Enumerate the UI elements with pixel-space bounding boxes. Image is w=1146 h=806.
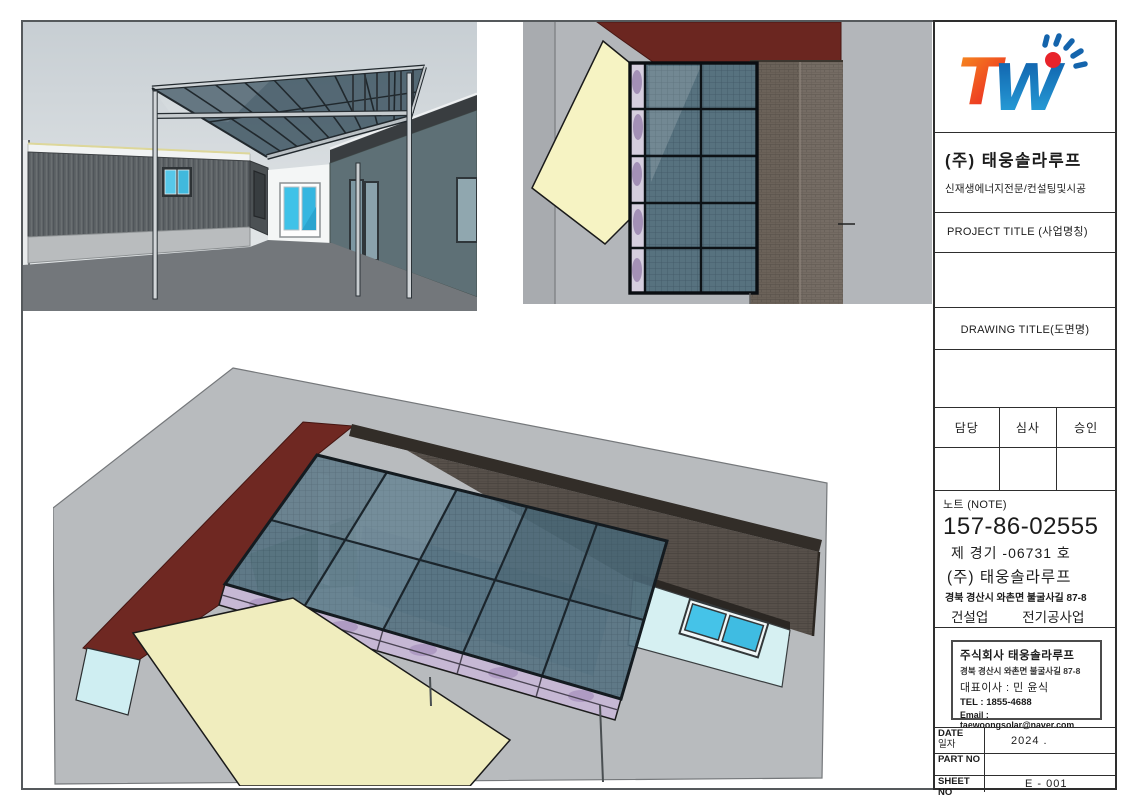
- business-types: 건설업 전기공사업: [943, 606, 1111, 626]
- note-cell: 노트 (NOTE) 157-86-02555 제 경기 -06731 호 (주)…: [935, 490, 1115, 627]
- info-address: 경북 경산시 와촌면 불굴사길 87-8: [960, 665, 1096, 677]
- company-info-cell: 주식회사 태웅솔라루프 경북 경산시 와촌면 불굴사길 87-8 대표이사 : …: [935, 627, 1115, 727]
- tw-logo: T W: [950, 32, 1100, 122]
- brown-building: [750, 61, 843, 304]
- approval-signature-row: [935, 447, 1115, 490]
- approval-col-simsa: 심사: [999, 408, 1057, 447]
- note-label: 노트 (NOTE): [943, 496, 1111, 512]
- company-subtitle: 신재생에너지전문/컨설팅및시공: [945, 181, 1107, 196]
- date-value: 2024 .: [985, 728, 1115, 753]
- drawing-sheet: T W (주) 태웅솔라루프 신재생에너지전문/컨설팅및시공 PROJECT T…: [0, 0, 1146, 806]
- drawing-title-label: DRAWING TITLE(도면명): [935, 307, 1115, 349]
- info-tel: TEL : 1855-4688: [960, 697, 1096, 708]
- logo-sun-dot: [1045, 52, 1061, 68]
- info-company: 주식회사 태웅솔라루프: [960, 647, 1096, 663]
- approval-col-seungin: 승인: [1056, 408, 1115, 447]
- logo-cell: T W: [935, 22, 1115, 132]
- note-company: (주) 태웅솔라루프: [943, 565, 1111, 587]
- approval-col-damdang: 담당: [935, 408, 999, 447]
- drawing-title-value: [935, 349, 1115, 407]
- title-block: T W (주) 태웅솔라루프 신재생에너지전문/컨설팅및시공 PROJECT T…: [933, 20, 1117, 790]
- company-name: (주) 태웅솔라루프: [945, 147, 1107, 171]
- date-label-kr: 일자: [938, 740, 984, 751]
- perspective-view: [23, 22, 477, 311]
- center-building-window: [280, 183, 320, 237]
- info-ceo: 대표이사 : 민 윤식: [960, 679, 1096, 695]
- date-label: DATE 일자: [935, 728, 985, 753]
- signature-seungin: [1056, 448, 1115, 490]
- approval-header-row: 담당 심사 승인: [935, 407, 1115, 447]
- left-building-window: [162, 167, 192, 197]
- top-view: [523, 22, 932, 304]
- business-type-construction: 건설업: [951, 606, 988, 626]
- signature-damdang: [935, 448, 999, 490]
- sheet-no-label: SHEET NO: [935, 776, 985, 792]
- signature-simsa: [999, 448, 1057, 490]
- company-info-box: 주식회사 태웅솔라루프 경북 경산시 와촌면 불굴사길 87-8 대표이사 : …: [951, 640, 1102, 720]
- license-number: 157-86-02555: [943, 513, 1111, 541]
- date-row: DATE 일자 2024 .: [935, 727, 1115, 753]
- center-building: [268, 164, 332, 244]
- aerial-view: [53, 346, 922, 786]
- project-title-value: [935, 252, 1115, 307]
- part-no-value: [985, 754, 1115, 775]
- company-cell: (주) 태웅솔라루프 신재생에너지전문/컨설팅및시공: [935, 132, 1115, 212]
- left-building: [28, 144, 268, 264]
- part-no-label: PART NO: [935, 754, 985, 775]
- part-no-row: PART NO: [935, 753, 1115, 775]
- note-address: 경북 경산시 와촌면 불굴사길 87-8: [943, 589, 1111, 604]
- registration-line: 제 경기 -06731 호: [943, 543, 1111, 563]
- sheet-no-value: E - 001: [985, 776, 1115, 792]
- sheet-no-row: SHEET NO E - 001: [935, 775, 1115, 792]
- business-type-electrical: 전기공사업: [1022, 606, 1084, 626]
- project-title-label: PROJECT TITLE (사업명칭): [935, 212, 1115, 252]
- solar-array: [630, 63, 757, 293]
